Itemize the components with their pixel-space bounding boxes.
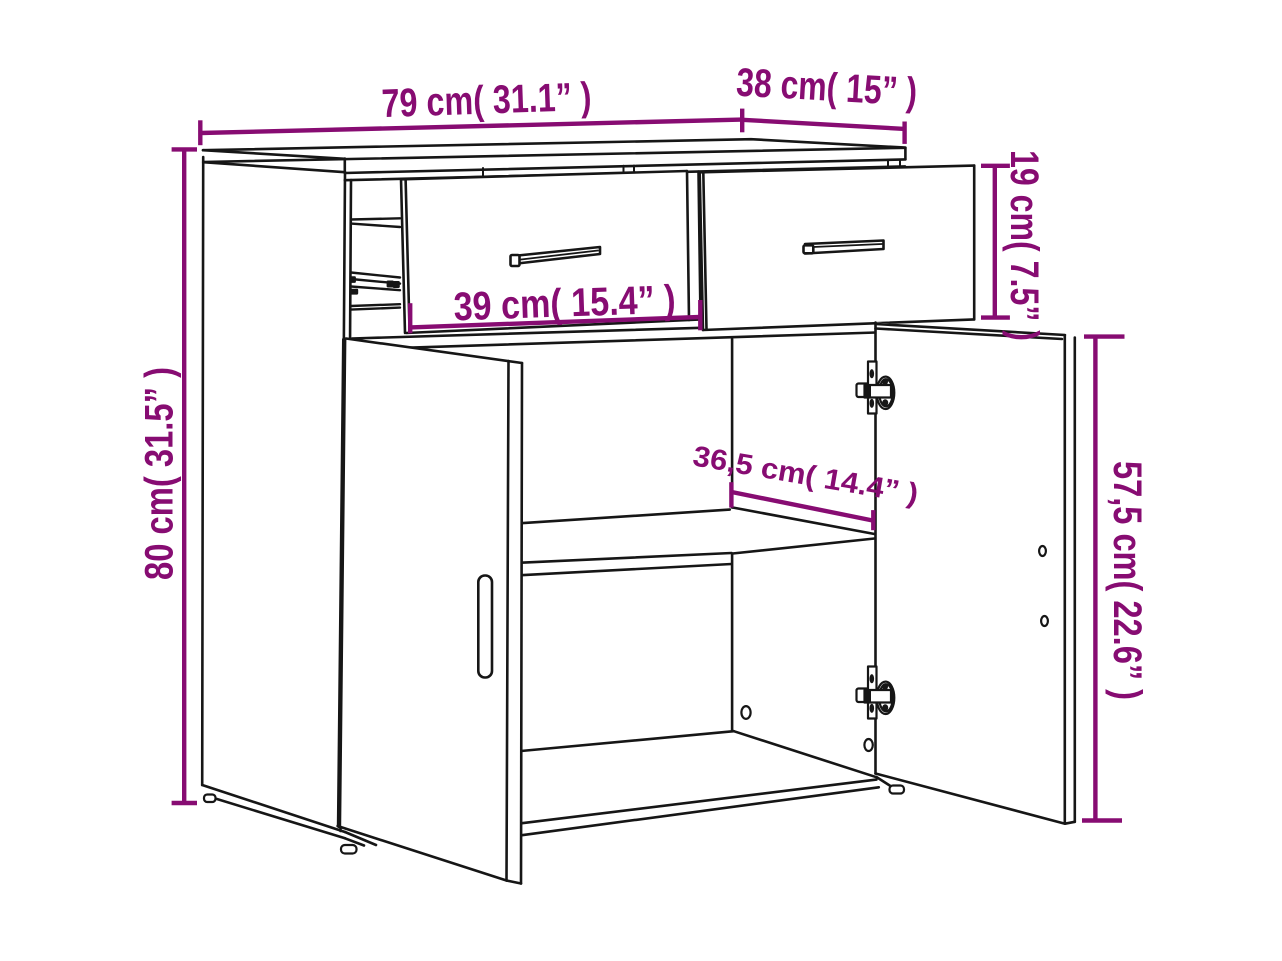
svg-text:39 cm( 15.4” ): 39 cm( 15.4” )	[453, 278, 676, 330]
svg-text:19 cm( 7.5” ): 19 cm( 7.5” )	[1002, 150, 1046, 341]
svg-text:79 cm( 31.1” ): 79 cm( 31.1” )	[381, 75, 592, 126]
svg-text:57,5 cm( 22.6” ): 57,5 cm( 22.6” )	[1105, 461, 1149, 700]
svg-text:80 cm( 31.5” ): 80 cm( 31.5” )	[138, 367, 182, 580]
